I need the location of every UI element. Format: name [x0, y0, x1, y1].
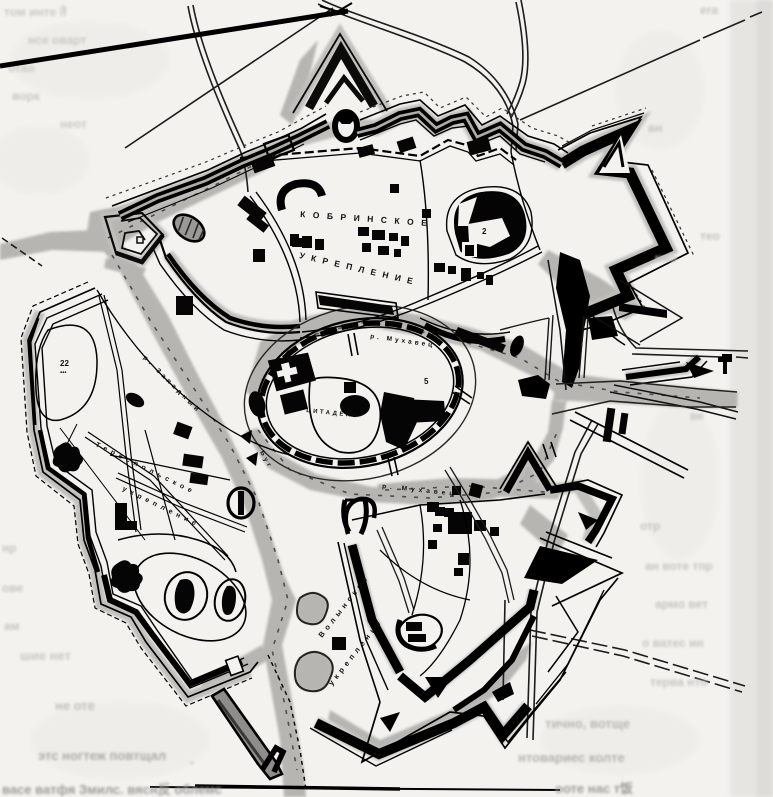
svg-text:тично, вотще: тично, вотще: [545, 716, 630, 731]
svg-text:ооте нас т饭: ооте нас т饭: [555, 781, 633, 796]
svg-text:том инте ते: том инте ते: [4, 5, 68, 19]
svg-text:▪▪▪: ▪▪▪: [60, 370, 66, 376]
svg-text:не оте: не оте: [55, 698, 95, 713]
svg-text:ам: ам: [4, 619, 20, 633]
svg-text:ве: ве: [690, 409, 704, 423]
svg-text:терва нто: терва нто: [650, 675, 707, 689]
svg-text:неот: неот: [60, 117, 87, 131]
svg-text:5: 5: [424, 377, 429, 386]
svg-text:о ватес ин: о ватес ин: [642, 636, 704, 650]
svg-text:нсе оварт: нсе оварт: [28, 33, 86, 47]
svg-text:нтовариес колте: нтовариес колте: [518, 750, 625, 765]
svg-text:ан воте тпр: ан воте тпр: [645, 559, 713, 573]
svg-text:армо вет: армо вет: [655, 597, 708, 611]
svg-text:этс ногтеж повтщал: этс ногтеж повтщал: [38, 748, 166, 763]
svg-text:2: 2: [482, 227, 487, 236]
svg-text:ворк: ворк: [12, 89, 41, 103]
svg-text:era: era: [700, 3, 718, 17]
svg-text:васе ватфя Змилс. вясн反 облемс: васе ватфя Змилс. вясн反 облемс: [2, 782, 222, 797]
svg-text:ове: ове: [2, 581, 24, 595]
svg-text:вн: вн: [648, 121, 663, 135]
svg-text:нр: нр: [2, 541, 17, 555]
svg-text:отр: отр: [640, 519, 660, 533]
svg-text:тео: тео: [700, 229, 720, 243]
svg-text:шие нет: шие нет: [20, 648, 71, 663]
svg-text:.: .: [190, 752, 194, 767]
svg-text:22: 22: [60, 359, 69, 368]
svg-text:нио: нио: [655, 251, 677, 265]
